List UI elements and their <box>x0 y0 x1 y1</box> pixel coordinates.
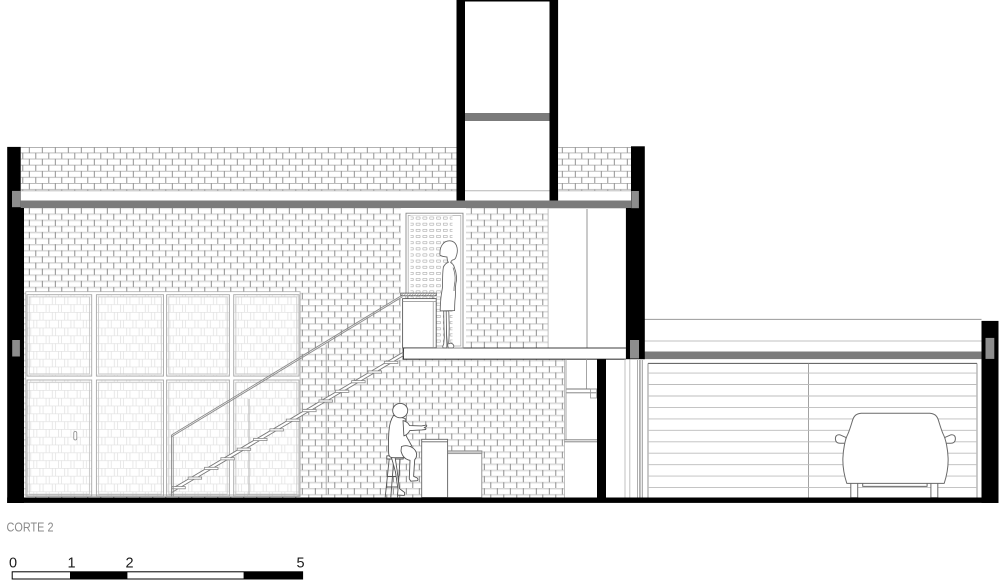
svg-text:2: 2 <box>126 556 134 572</box>
svg-text:0: 0 <box>9 556 17 572</box>
svg-text:1: 1 <box>68 556 76 572</box>
svg-text:CORTE 2: CORTE 2 <box>7 520 54 534</box>
svg-text:5: 5 <box>297 556 305 572</box>
